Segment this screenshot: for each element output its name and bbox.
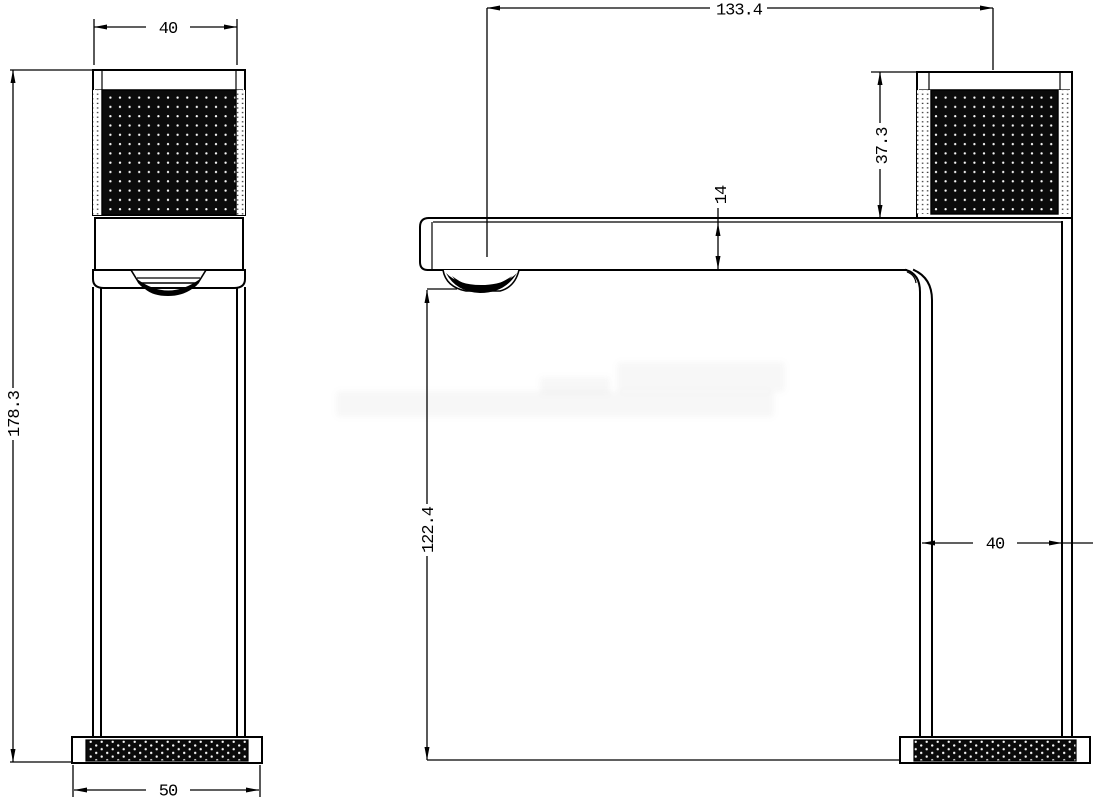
- dim-handle-height: 37.3: [871, 72, 917, 218]
- dim-body-depth-label: 40: [986, 536, 1005, 555]
- watermark: [336, 362, 785, 417]
- dim-spout-height-label: 122.4: [420, 506, 439, 553]
- technical-drawing: 40 133.4 178.3 37.3 14: [0, 0, 1095, 800]
- front-collar: [95, 218, 243, 270]
- front-view: [72, 70, 262, 763]
- front-aerator: [131, 270, 206, 296]
- dim-base-width-label: 50: [159, 783, 178, 800]
- front-handle-edge-left: [93, 90, 102, 215]
- dim-handle-height-label: 37.3: [874, 127, 893, 165]
- drawing-canvas: 40 133.4 178.3 37.3 14: [0, 0, 1095, 800]
- side-handle-edge-left: [917, 90, 931, 214]
- dim-front-handle-width: 40: [94, 19, 237, 65]
- dim-front-handle-width-label: 40: [159, 20, 178, 39]
- dim-spout-reach-label: 133.4: [716, 2, 763, 21]
- side-view: [420, 72, 1090, 763]
- dim-overall-height: 178.3: [6, 70, 92, 762]
- dim-overall-height-label: 178.3: [6, 390, 25, 437]
- dim-spout-height: 122.4: [420, 289, 900, 760]
- dim-body-depth: 40: [922, 536, 1093, 555]
- front-base-knurl: [86, 740, 248, 761]
- dim-spout-thickness-label: 14: [713, 185, 732, 204]
- side-handle-edge-right: [1058, 90, 1072, 214]
- front-handle-knurl: [102, 90, 236, 215]
- front-handle-edge-right: [236, 90, 245, 215]
- dim-base-width: 50: [73, 765, 260, 800]
- side-handle-knurl: [931, 90, 1058, 214]
- side-base-knurl: [914, 740, 1076, 761]
- dim-spout-thickness: 14: [713, 185, 732, 269]
